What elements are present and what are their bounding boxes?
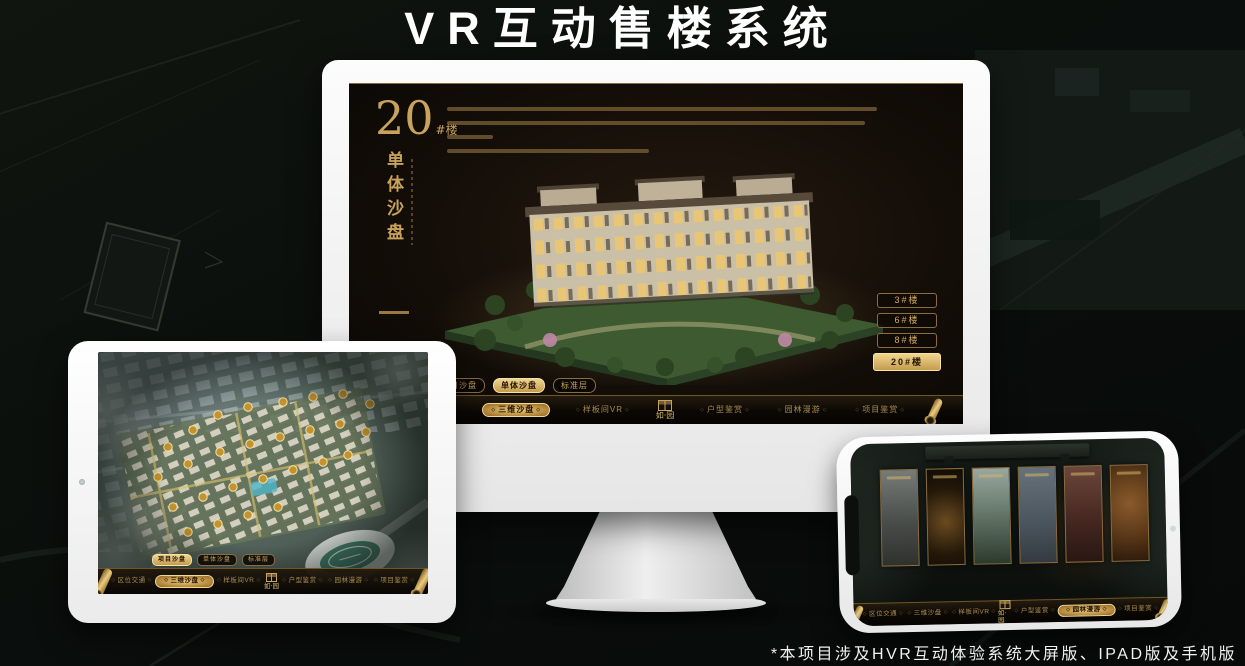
nav-item-project-view[interactable]: 项目鉴赏 [853, 406, 907, 414]
tab-standard-floor[interactable]: 标准层 [242, 554, 275, 566]
nav-item-3d-sandtable[interactable]: 三维沙盘 [905, 610, 950, 617]
tab-project-sandtable[interactable]: 项目沙盘 [152, 554, 192, 566]
phone-notch [844, 495, 860, 575]
tab-single-sandtable[interactable]: 单体沙盘 [197, 554, 237, 566]
phone-screen[interactable]: 区位交通 三维沙盘 样板间VR 如·园 户型鉴赏 园林漫游 项目鉴赏 [850, 438, 1168, 627]
nav-item-floorplan[interactable]: 户型鉴赏 [1012, 608, 1057, 615]
building-headline: 20#楼 [375, 95, 458, 141]
page-title: VR互动售楼系统 [0, 0, 1245, 58]
tablet-navbar: 区位交通 三维沙盘 样板间VR 如·园 户型鉴赏 园林漫游 项目鉴赏 [98, 568, 428, 594]
building-button-6[interactable]: 6#楼 [877, 313, 937, 328]
tablet-device: 项目沙盘 单体沙盘 标准层 区位交通 三维沙盘 样板间VR 如·园 户型鉴赏 园… [68, 341, 456, 623]
gallery-panel[interactable] [972, 467, 1012, 565]
building-button-20[interactable]: 20#楼 [873, 353, 941, 371]
nav-item-3d-sandtable[interactable]: 三维沙盘 [482, 403, 550, 417]
scroll-menu-icon[interactable] [926, 397, 943, 422]
tab-standard-floor[interactable]: 标准层 [553, 378, 596, 393]
scene-gallery [880, 464, 1150, 567]
building-3d-model[interactable] [415, 135, 895, 385]
brand-logo: 如·园 [998, 600, 1013, 625]
building-selector: 3#楼 6#楼 8#楼 20#楼 [873, 293, 941, 376]
nav-item-showroom-vr[interactable]: 样板间VR [950, 609, 998, 616]
nav-item-location-traffic[interactable]: 区位交通 [861, 611, 906, 618]
nav-item-floorplan[interactable]: 户型鉴赏 [280, 578, 325, 585]
promo-canvas: VR互动售楼系统 20#楼 单体沙盘 [0, 0, 1245, 666]
headline-underline [379, 311, 409, 314]
headline-subtitle: 单体沙盘 [381, 151, 406, 301]
nav-item-project-view[interactable]: 项目鉴赏 [1116, 606, 1161, 613]
tablet-screen[interactable]: 项目沙盘 单体沙盘 标准层 区位交通 三维沙盘 样板间VR 如·园 户型鉴赏 园… [98, 352, 428, 594]
nav-item-floorplan[interactable]: 户型鉴赏 [698, 406, 752, 414]
footnote-text: *本项目涉及HVR互动体验系统大屏版、IPAD版及手机版 [771, 640, 1237, 664]
building-number: 20 [375, 91, 434, 145]
brand-logo: 如·园 [656, 400, 675, 421]
brand-logo-text: 如·园 [998, 610, 1013, 625]
phone-device: 区位交通 三维沙盘 样板间VR 如·园 户型鉴赏 园林漫游 项目鉴赏 [836, 430, 1182, 633]
tablet-tabs: 项目沙盘 单体沙盘 标准层 [152, 554, 280, 566]
description-paragraph [447, 107, 879, 163]
tablet-camera-icon [79, 479, 85, 485]
gallery-panel[interactable] [1064, 465, 1104, 563]
nav-item-3d-sandtable[interactable]: 三维沙盘 [155, 575, 214, 588]
headline-english-deco [411, 159, 413, 245]
brand-logo-text: 如·园 [264, 583, 279, 590]
nav-item-garden-roam[interactable]: 园林漫游 [776, 406, 830, 414]
nav-item-project-view[interactable]: 项目鉴赏 [372, 578, 417, 585]
gallery-panel[interactable] [1018, 466, 1058, 564]
brand-logo: 如·园 [264, 573, 279, 590]
nav-item-garden-roam[interactable]: 园林漫游 [1057, 604, 1116, 618]
brand-emblem-icon [266, 573, 277, 582]
tab-single-sandtable[interactable]: 单体沙盘 [493, 378, 545, 393]
building-button-8[interactable]: 8#楼 [877, 333, 937, 348]
gallery-panel[interactable] [926, 468, 966, 566]
nav-item-garden-roam[interactable]: 园林漫游 [326, 578, 371, 585]
nav-item-showroom-vr[interactable]: 样板间VR [574, 406, 632, 414]
nav-item-location-traffic[interactable]: 区位交通 [109, 578, 154, 585]
monitor-tabs: 项目沙盘 单体沙盘 标准层 [433, 378, 604, 393]
phone-camera-icon [1170, 526, 1176, 532]
building-button-3[interactable]: 3#楼 [877, 293, 937, 308]
gallery-panel[interactable] [880, 469, 920, 567]
nav-item-showroom-vr[interactable]: 样板间VR [215, 578, 263, 585]
gallery-panel[interactable] [1110, 464, 1150, 562]
brand-emblem-icon [999, 600, 1010, 609]
brand-logo-text: 如·园 [656, 412, 675, 421]
brand-emblem-icon [658, 400, 672, 411]
